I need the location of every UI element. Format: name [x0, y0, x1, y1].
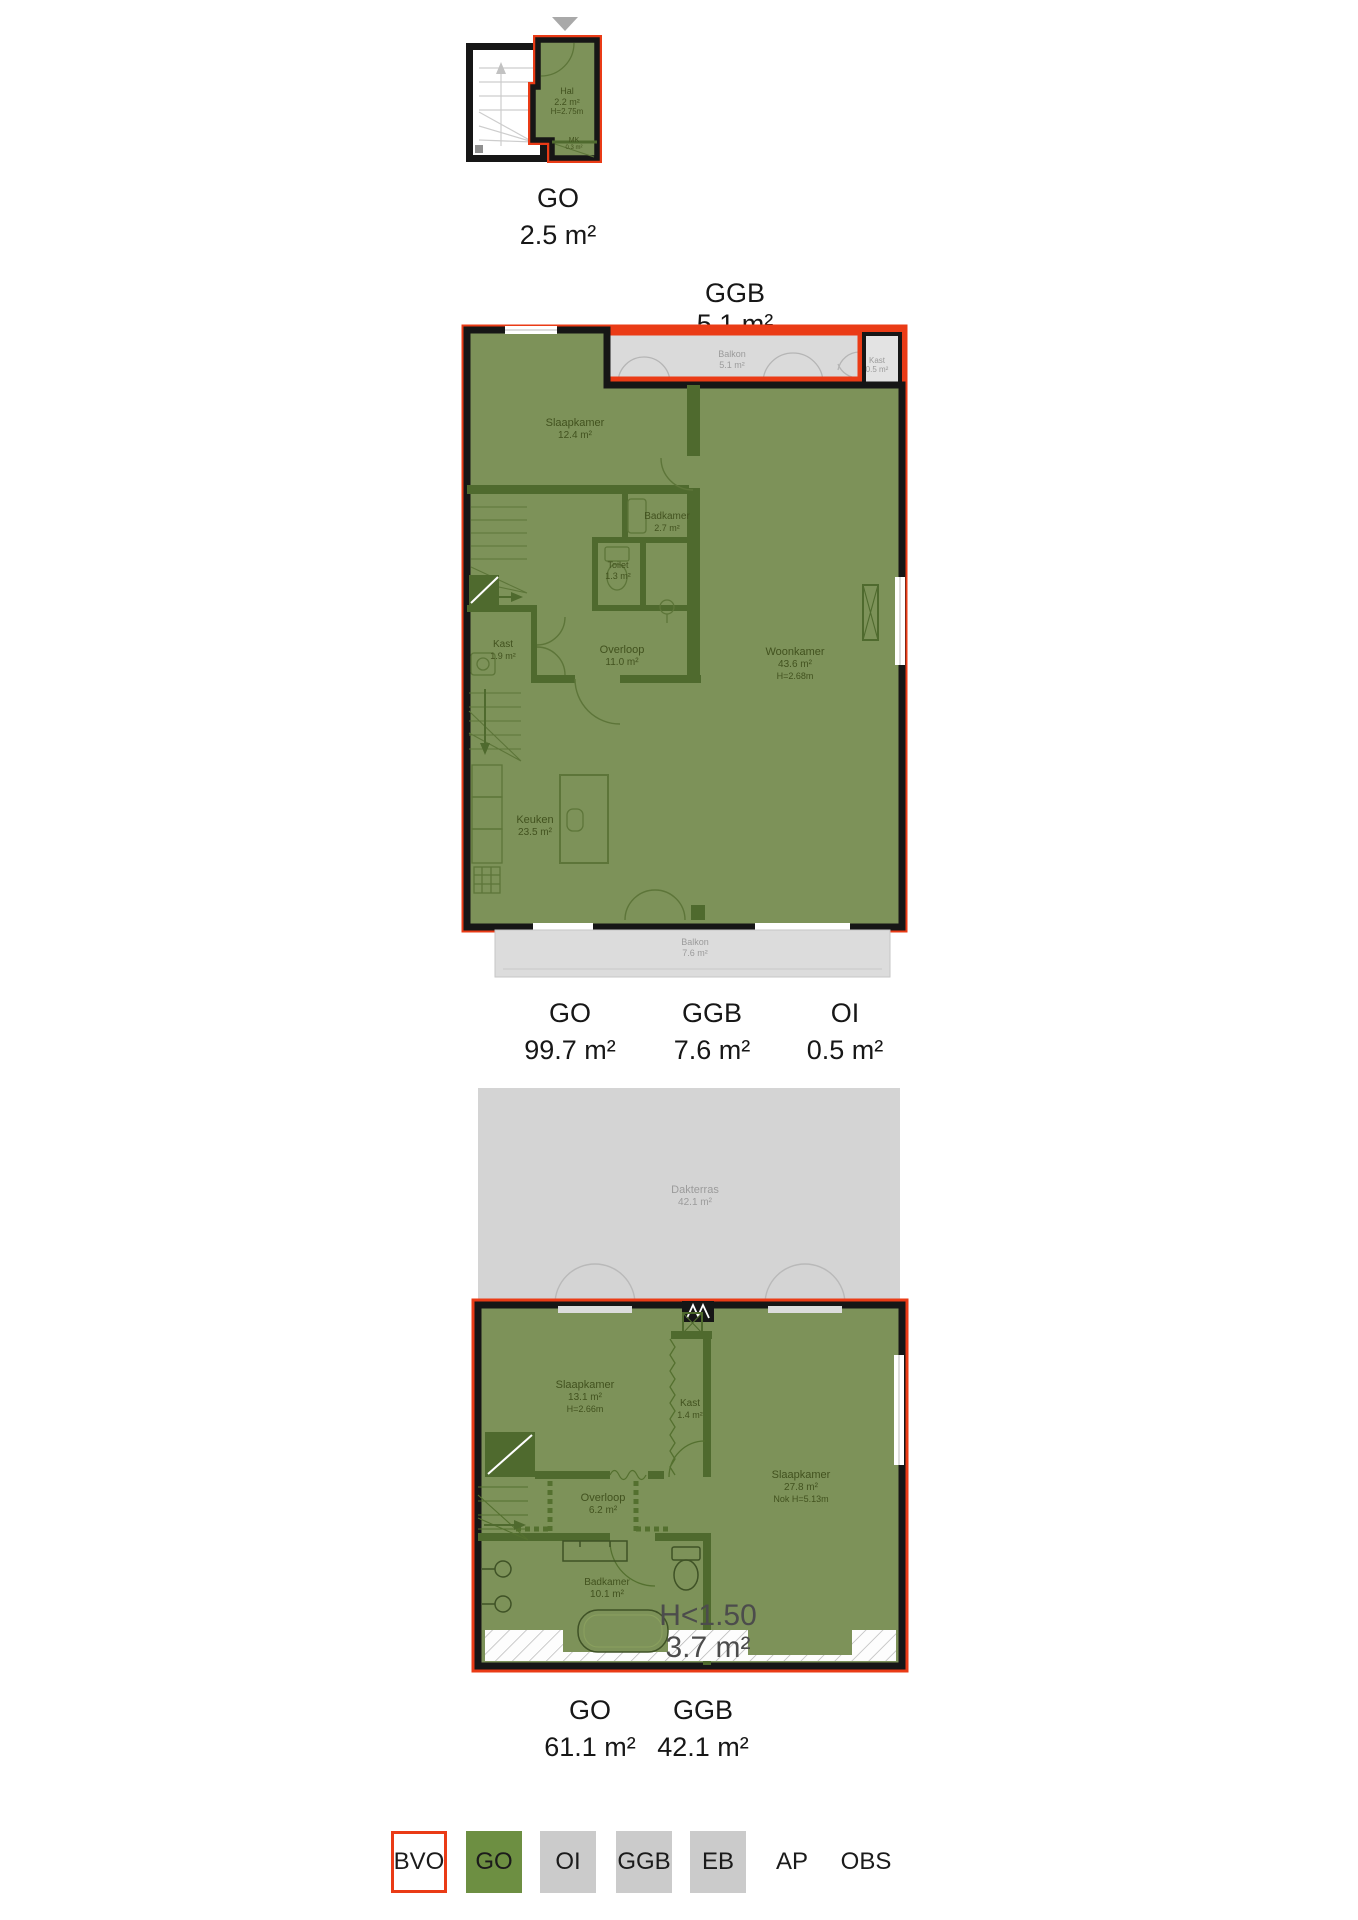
- room-label-slaapkamer-2: Slaapkamer 27.8 m² Nok H=5.13m: [741, 1469, 861, 1504]
- low-headroom-label: H<1.50 3.7 m²: [628, 1600, 788, 1664]
- room-label-hal: Hal 2.2 m² H=2.75m: [530, 86, 604, 117]
- room-label-overloop-3: Overloop 6.2 m²: [553, 1492, 653, 1517]
- room-label-keuken: Keuken 23.5 m²: [485, 814, 585, 839]
- room-label-mk: MK 0.3 m²: [552, 137, 596, 152]
- room-label-overloop: Overloop 11.0 m²: [572, 644, 672, 669]
- room-label-badkamer-3: Badkamer 10.1 m²: [557, 1577, 657, 1601]
- plan-middle-summary-go: GO 99.7 m²: [500, 998, 640, 1066]
- window-icon: [533, 923, 593, 930]
- room-label-toilet: Toilet 1.3 m²: [593, 560, 643, 581]
- plan-middle-summary-oi: OI 0.5 m²: [775, 998, 915, 1066]
- room-label-badkamer: Badkamer 2.7 m²: [627, 511, 707, 533]
- plan-middle-drawing: [455, 275, 925, 985]
- plan-middle-summary-ggb: GGB 7.6 m²: [642, 998, 782, 1066]
- plan-top-summary: GO 2.5 m²: [488, 183, 628, 251]
- room-label-slaapkamer: Slaapkamer 12.4 m²: [515, 417, 635, 442]
- legend-item-bvo: BVO: [391, 1831, 447, 1893]
- door-opening: [768, 1306, 842, 1313]
- window-icon: [755, 923, 850, 930]
- room-label-kast-3: Kast 1.4 m²: [663, 1398, 717, 1420]
- legend-item-ap: AP: [764, 1831, 820, 1893]
- legend-item-eb: EB: [690, 1831, 746, 1893]
- legend-item-ggb: GGB: [616, 1831, 672, 1893]
- room-label-balkon-top: Balkon 5.1 m²: [682, 349, 782, 370]
- plan-bottom-summary-ggb: GGB 42.1 m²: [633, 1695, 773, 1763]
- legend-item-oi: OI: [540, 1831, 596, 1893]
- room-label-woonkamer: Woonkamer 43.6 m² H=2.68m: [735, 646, 855, 681]
- legend-item-go: GO: [466, 1831, 522, 1893]
- room-label-slaapkamer-1: Slaapkamer 13.1 m² H=2.66m: [525, 1379, 645, 1414]
- room-label-kast-oi: Kast 0.5 m²: [850, 356, 904, 375]
- north-arrow-icon: [552, 17, 578, 31]
- legend-item-obs: OBS: [838, 1831, 894, 1893]
- door-opening: [558, 1306, 632, 1313]
- floorplan-report: Hal 2.2 m² H=2.75m MK 0.3 m² GO 2.5 m² G…: [0, 0, 1358, 1920]
- room-label-dakterras: Dakterras 42.1 m²: [645, 1184, 745, 1209]
- room-label-kast: Kast 1.9 m²: [468, 639, 538, 661]
- room-label-balkon-bottom: Balkon 7.6 m²: [645, 937, 745, 958]
